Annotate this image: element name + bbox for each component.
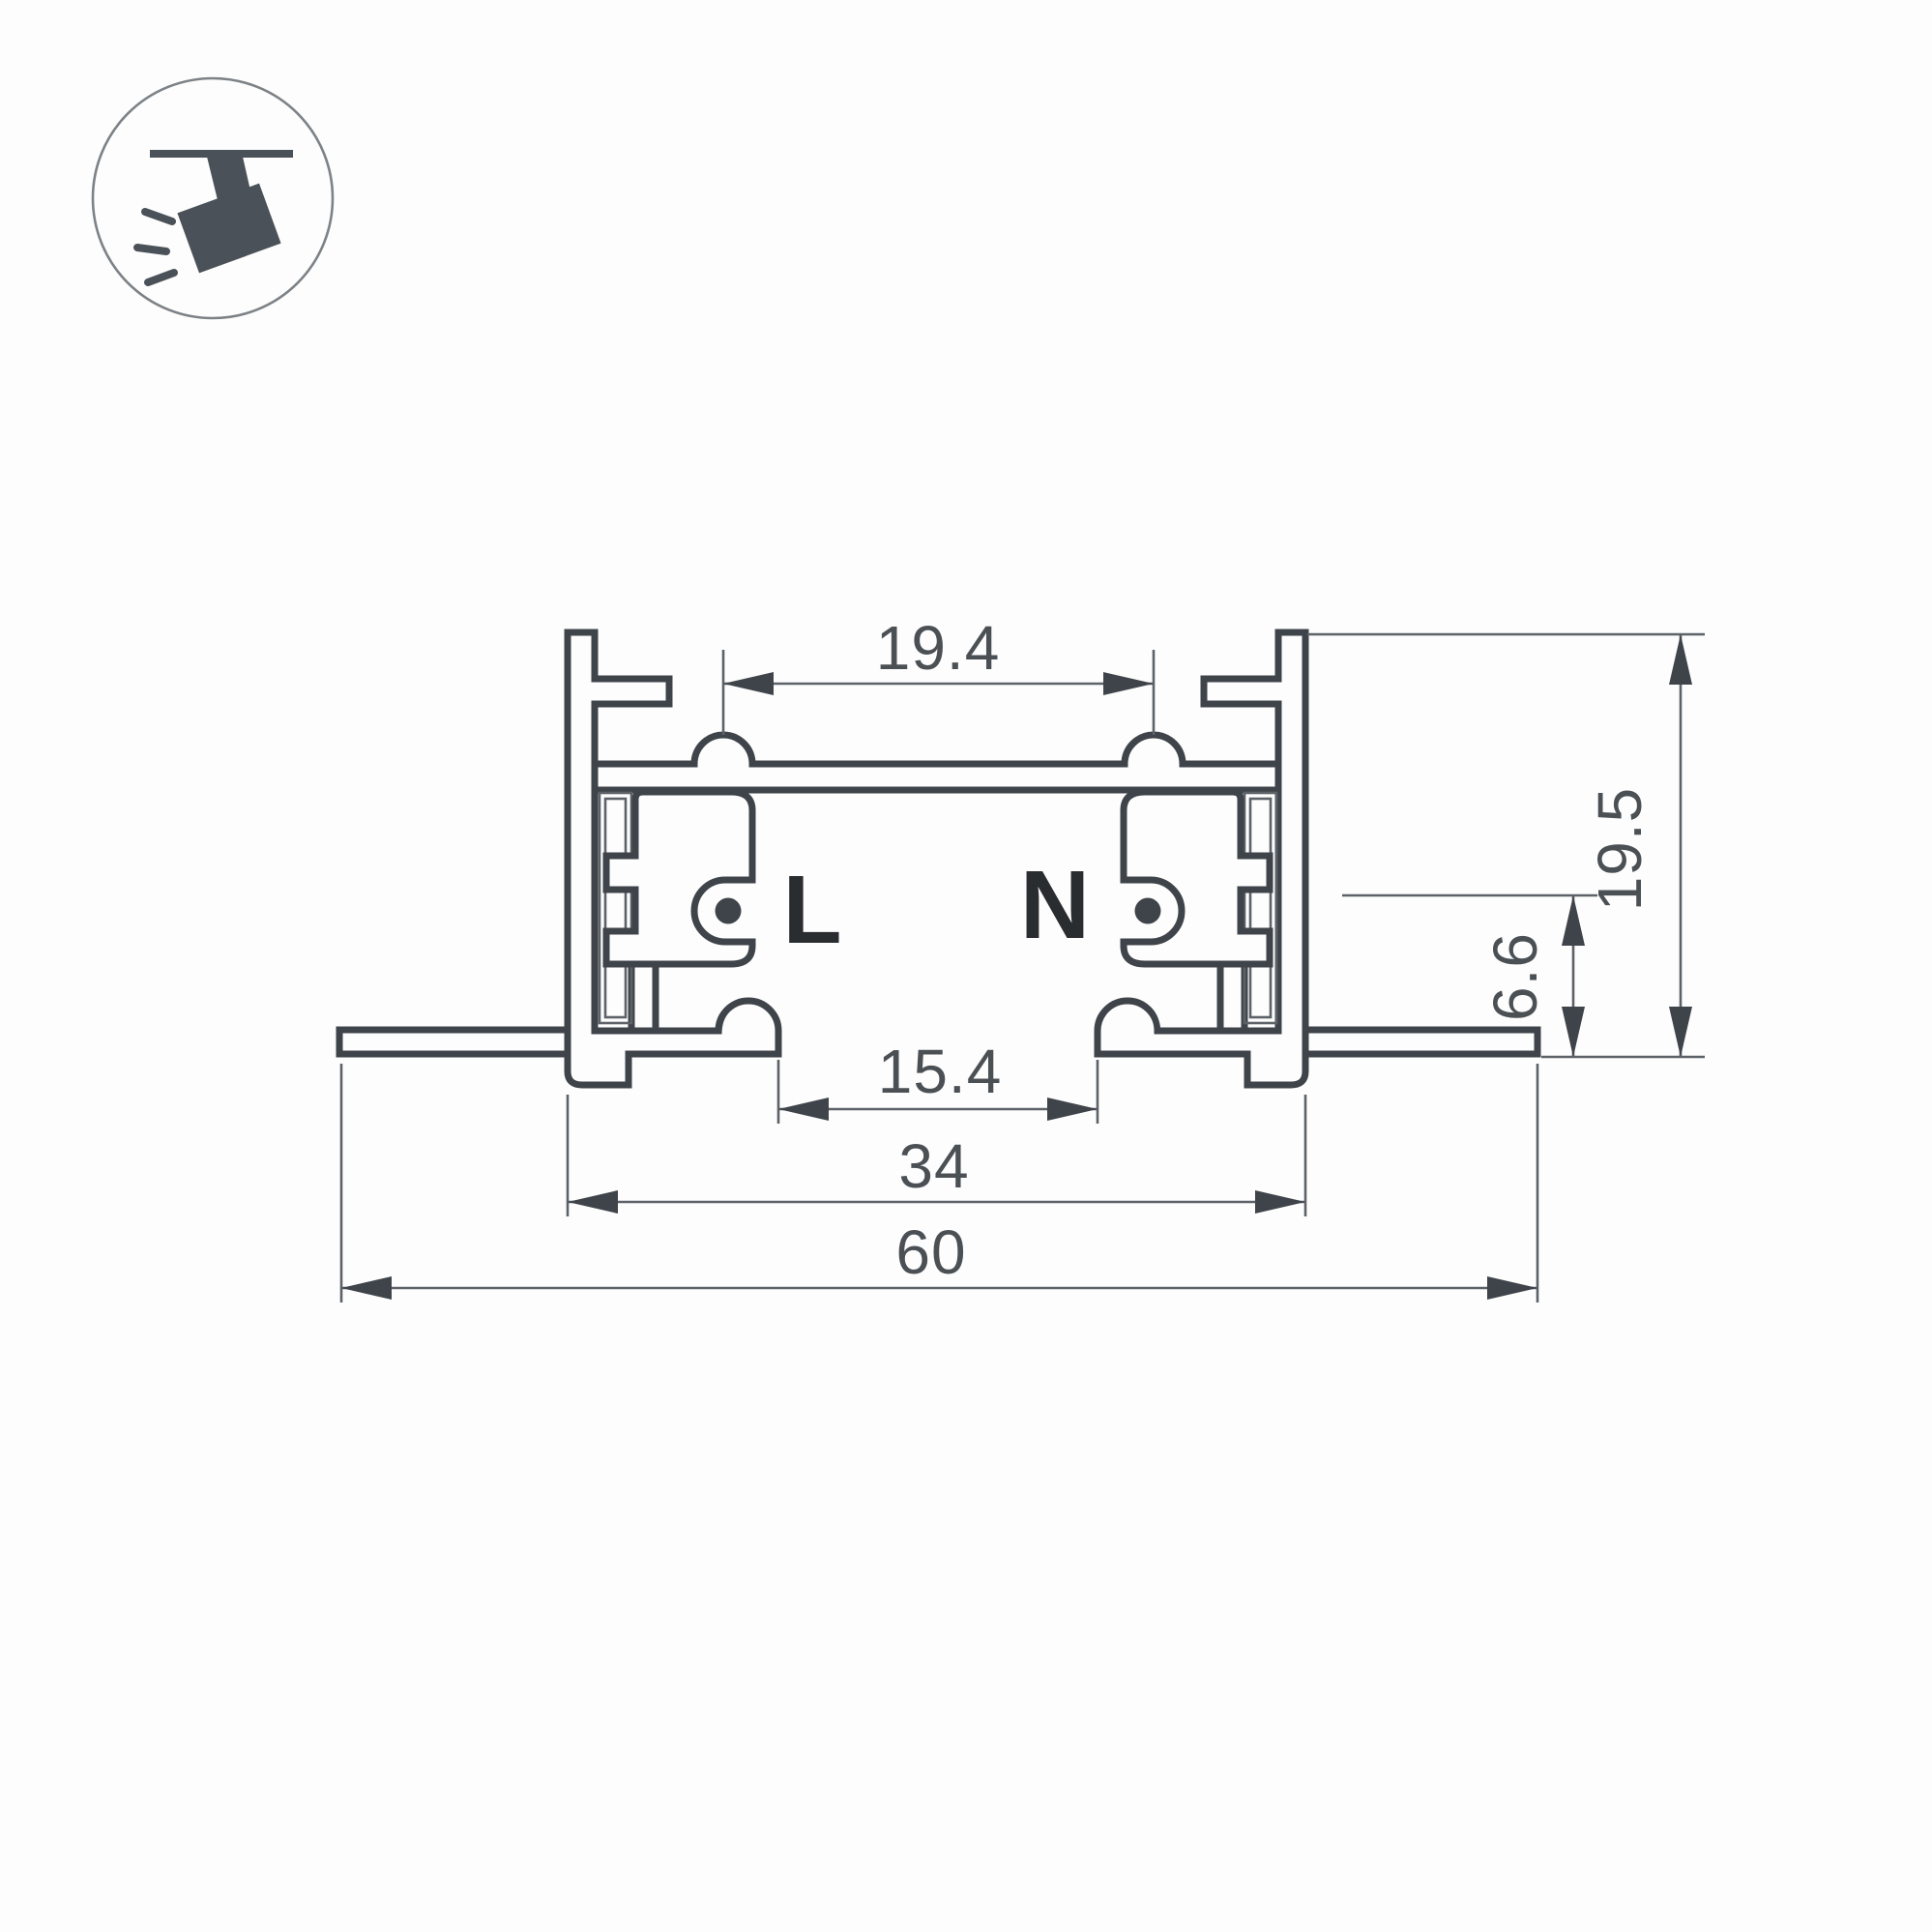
- neutral-conductor-label: N: [1020, 851, 1090, 959]
- left-foot: [568, 1054, 629, 1085]
- left-post: [631, 967, 656, 1031]
- arrowhead-left: [568, 1190, 618, 1214]
- dimension-bottom-opening-width: 15.4: [778, 1037, 1098, 1124]
- channel-floor-with-bumps: [595, 735, 1278, 764]
- icon-spotlight-head: [177, 184, 280, 274]
- dimension-value: 34: [898, 1131, 969, 1201]
- icon-light-ray: [145, 212, 172, 221]
- ceiling-track-spotlight-icon: [93, 78, 333, 318]
- arrowhead-top: [1562, 895, 1585, 946]
- icon-ceiling-bar: [150, 150, 293, 158]
- dimension-value: 6.6: [1480, 932, 1550, 1021]
- right-flange: [1305, 1030, 1537, 1054]
- dimension-value: 15.4: [878, 1037, 1003, 1106]
- drawing-page: L N 19.4 19.5 6.6 15.4: [0, 0, 1932, 1932]
- live-conductor-housing: [606, 792, 752, 964]
- dimension-value: 60: [895, 1217, 966, 1287]
- profile-cross-section: L N: [339, 632, 1537, 1085]
- arrowhead-left: [778, 1098, 829, 1121]
- dimension-top-inner-width: 19.4: [723, 613, 1154, 735]
- left-insulator-liner: [605, 799, 626, 1017]
- icon-light-ray: [137, 248, 166, 251]
- icon-light-ray: [148, 273, 174, 282]
- arrowhead-left: [723, 672, 774, 695]
- arrowhead-right: [1487, 1276, 1537, 1300]
- left-flange: [339, 1030, 568, 1054]
- dimension-value: 19.4: [876, 613, 1001, 683]
- dimension-value: 19.5: [1585, 787, 1654, 912]
- arrowhead-bottom: [1562, 1007, 1585, 1057]
- neutral-conductor-housing: [1124, 792, 1270, 964]
- technical-drawing-canvas: L N 19.4 19.5 6.6 15.4: [0, 0, 1932, 1932]
- arrowhead-bottom: [1669, 1007, 1692, 1057]
- right-post: [1220, 967, 1244, 1031]
- arrowhead-right: [1047, 1098, 1098, 1121]
- arrowhead-top: [1669, 634, 1692, 685]
- arrowhead-right: [1255, 1190, 1305, 1214]
- arrowhead-left: [341, 1276, 392, 1300]
- live-conductor-label: L: [782, 856, 841, 964]
- arrowhead-right: [1103, 672, 1154, 695]
- dimension-body-width: 34: [568, 1095, 1305, 1216]
- icon-circle: [93, 78, 333, 318]
- right-insulator-liner: [1250, 799, 1271, 1017]
- right-foot: [1247, 1054, 1305, 1085]
- neutral-conductor-dot: [1135, 898, 1161, 924]
- live-conductor-dot: [716, 898, 742, 924]
